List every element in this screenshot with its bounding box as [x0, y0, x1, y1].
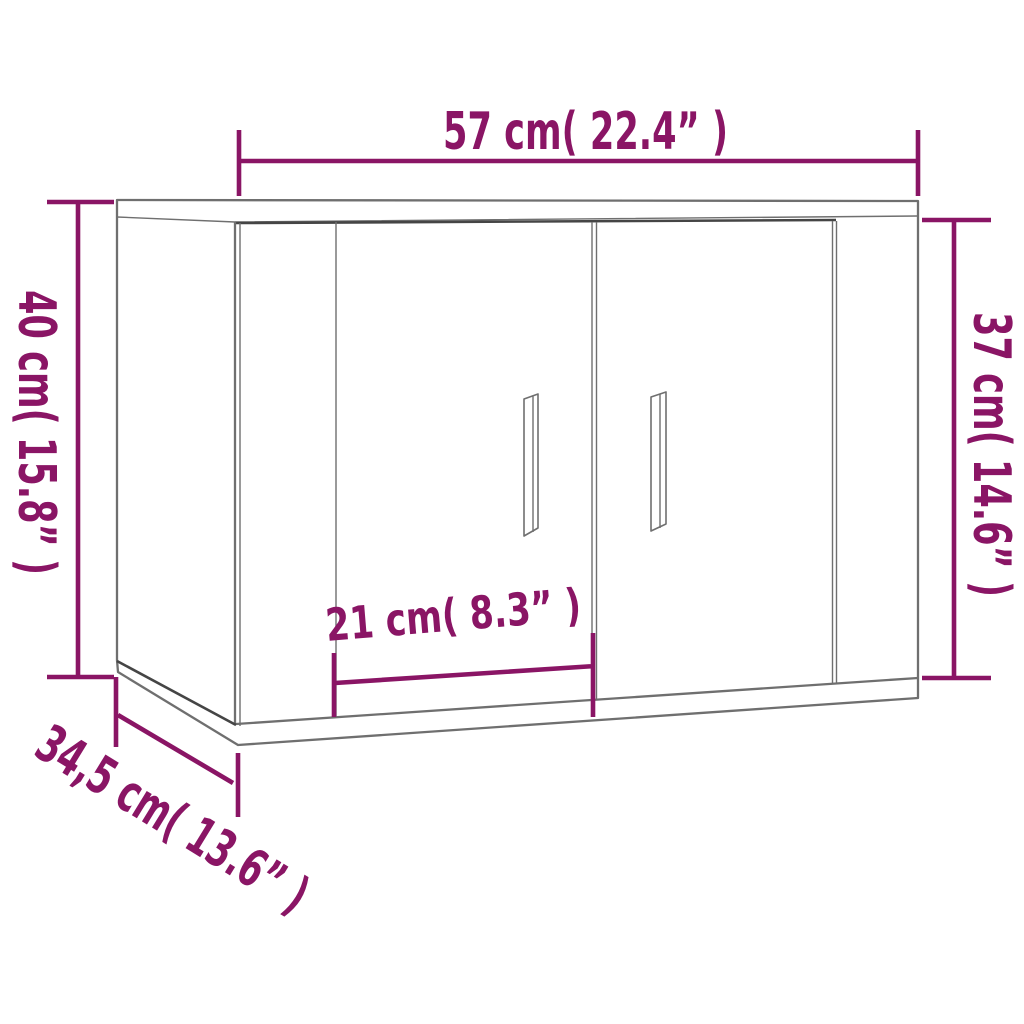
left-door-handle — [524, 394, 538, 536]
height-left-dimension-label: 40 cm( 15.8” ) — [6, 290, 66, 575]
cabinet-door-top-edge — [235, 220, 836, 223]
diagram-svg: 57 cm( 22.4” ) 40 cm( 15.8” ) 37 cm( 14.… — [0, 0, 1024, 1024]
cabinet-side-bottom-edge — [117, 661, 236, 725]
height-right-dimension-label: 37 cm( 14.6” ) — [961, 312, 1021, 597]
cabinet-silhouette — [117, 200, 918, 745]
cabinet-drawing — [117, 200, 918, 745]
door-width-dimension-label: 21 cm( 8.3” ) — [324, 578, 583, 652]
right-door-handle — [651, 392, 666, 531]
dimension-labels: 57 cm( 22.4” ) 40 cm( 15.8” ) 37 cm( 14.… — [6, 102, 1021, 926]
left-door-handle-bar — [524, 394, 538, 536]
dimension-diagram: 57 cm( 22.4” ) 40 cm( 15.8” ) 37 cm( 14.… — [0, 0, 1024, 1024]
right-door-handle-bar — [651, 392, 666, 531]
width-dimension-label: 57 cm( 22.4” ) — [443, 102, 728, 162]
